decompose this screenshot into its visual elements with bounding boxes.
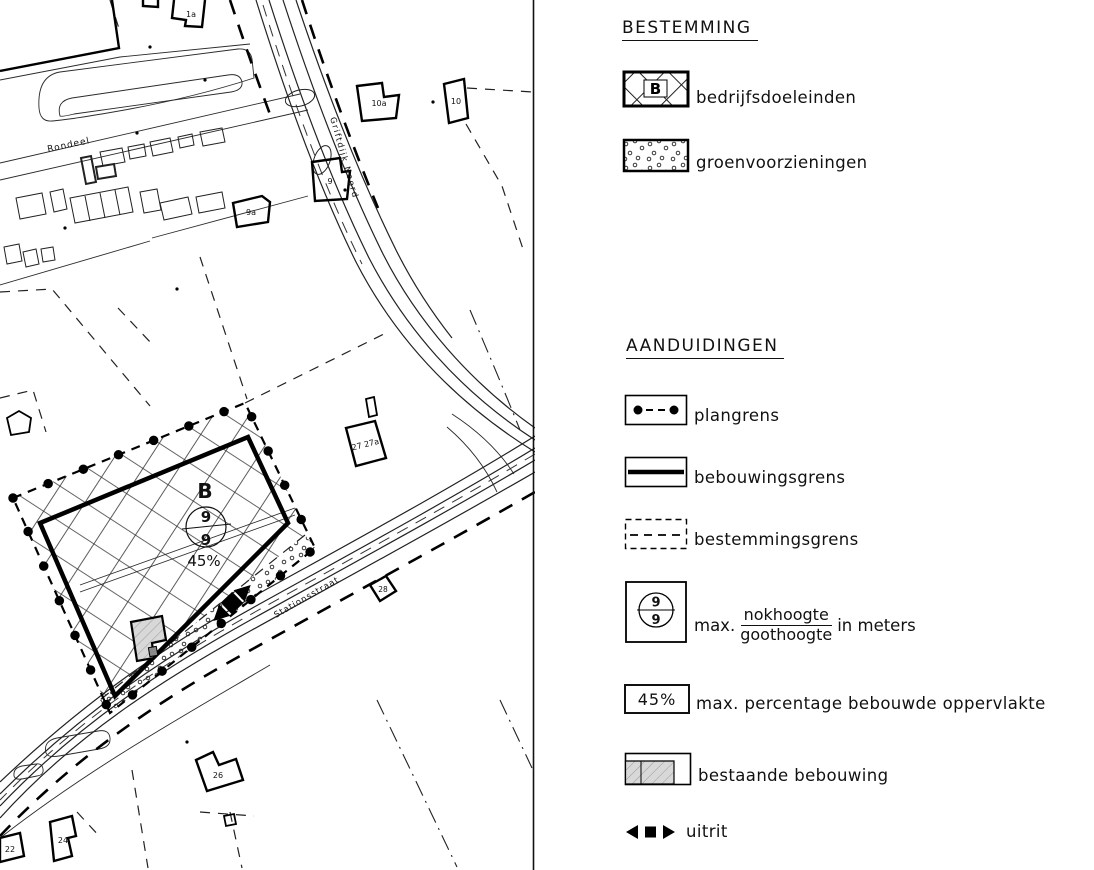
legend-label: groenvoorzieningen	[696, 153, 868, 173]
legend-label-fraction: max. nokhoogte goothoogte in meters	[694, 607, 916, 644]
legend-label: bebouwingsgrens	[694, 468, 845, 488]
fraction: nokhoogte goothoogte	[740, 607, 832, 644]
swatch-letter-B: B	[650, 80, 661, 98]
zoning-plan-sheet: B 9 9 45% Rondeel Griftdijk Noord Statio…	[0, 0, 1094, 870]
building-label-10a: 10a	[371, 99, 386, 108]
legend-item-groenvoorzieningen: groenvoorzieningen	[622, 138, 868, 173]
parcel-dashed-lines	[0, 0, 533, 868]
fraction-top: nokhoogte	[741, 607, 832, 626]
legend-item-percentage: 45% max. percentage bebouwde oppervlakte	[624, 684, 1046, 714]
existing-building-swatch	[624, 752, 692, 786]
groenvoorzieningen-swatch	[622, 138, 690, 173]
building-label-28: 28	[378, 585, 388, 594]
road-griftdijk-noord	[256, 0, 535, 452]
height-circle-swatch: 9 9	[624, 580, 688, 644]
street-label-stationsstraat: Stationsstraat	[273, 575, 342, 620]
zone-goothoogte: 9	[201, 531, 211, 549]
percentage-swatch: 45%	[624, 684, 690, 714]
legend-label: bestaande bebouwing	[698, 766, 889, 786]
building-label-9: 9	[327, 177, 332, 186]
street-label-rondeel: Rondeel	[47, 136, 91, 155]
building-label-9a: 9a	[246, 208, 256, 217]
legend-item-nokhoogte-goothoogte: 9 9 max. nokhoogte goothoogte in meters	[624, 580, 916, 644]
legend-title-aanduidingen-text: AANDUIDINGEN	[626, 336, 778, 356]
plan-boundary-dashes	[0, 0, 535, 836]
fraction-bottom: goothoogte	[740, 626, 832, 644]
building-label-1a: 1a	[186, 10, 196, 19]
percentage-value: 45%	[638, 690, 677, 709]
legend-item-bedrijfsdoeleinden: B bedrijfsdoeleinden	[622, 70, 856, 108]
legend-panel: BESTEMMING B bedrijfsdoeleinden groenvoo…	[622, 0, 1092, 870]
swatch-nokhoogte-value: 9	[651, 596, 660, 611]
legend-item-bestaande-bebouwing: bestaande bebouwing	[624, 752, 889, 786]
legend-label: bedrijfsdoeleinden	[696, 88, 856, 108]
building-label-10: 10	[451, 97, 461, 106]
bedrijfsdoeleinden-swatch: B	[622, 70, 690, 108]
bestemmingsgrens-swatch	[624, 518, 688, 550]
legend-label: uitrit	[686, 822, 728, 841]
swatch-goothoogte-value: 9	[651, 613, 660, 628]
legend-item-bebouwingsgrens: bebouwingsgrens	[624, 456, 845, 488]
legend-item-uitrit: uitrit	[624, 822, 728, 841]
building-label-26: 26	[213, 771, 223, 780]
building-label-27-27a: 27 27a	[351, 437, 380, 452]
house-outlines	[4, 86, 335, 267]
legend-label: bestemmingsgrens	[694, 530, 859, 550]
bebouwingsgrens-swatch	[624, 456, 688, 488]
building-label-22: 22	[5, 845, 15, 854]
legend-title-aanduidingen: AANDUIDINGEN	[626, 336, 784, 359]
zone-letter: B	[197, 479, 212, 503]
legend-label: max. percentage bebouwde oppervlakte	[696, 694, 1046, 714]
boundary-dashdot-lines	[377, 310, 532, 867]
plangrens-swatch	[624, 394, 688, 426]
legend-item-bestemmingsgrens: bestemmingsgrens	[624, 518, 859, 550]
lane-marking	[263, 5, 362, 264]
uitrit-swatch	[624, 823, 680, 841]
fraction-suffix: in meters	[837, 616, 916, 635]
zone-nokhoogte: 9	[201, 508, 211, 526]
legend-label: plangrens	[694, 406, 779, 426]
legend-title-bestemming-text: BESTEMMING	[622, 18, 752, 38]
legend-item-plangrens: plangrens	[624, 394, 779, 426]
zone-percentage: 45%	[187, 552, 220, 570]
legend-title-bestemming: BESTEMMING	[622, 18, 758, 41]
fraction-prefix: max.	[694, 616, 735, 635]
building-label-24: 24	[58, 836, 68, 845]
cadastral-map: B 9 9 45% Rondeel Griftdijk Noord Statio…	[0, 0, 535, 870]
